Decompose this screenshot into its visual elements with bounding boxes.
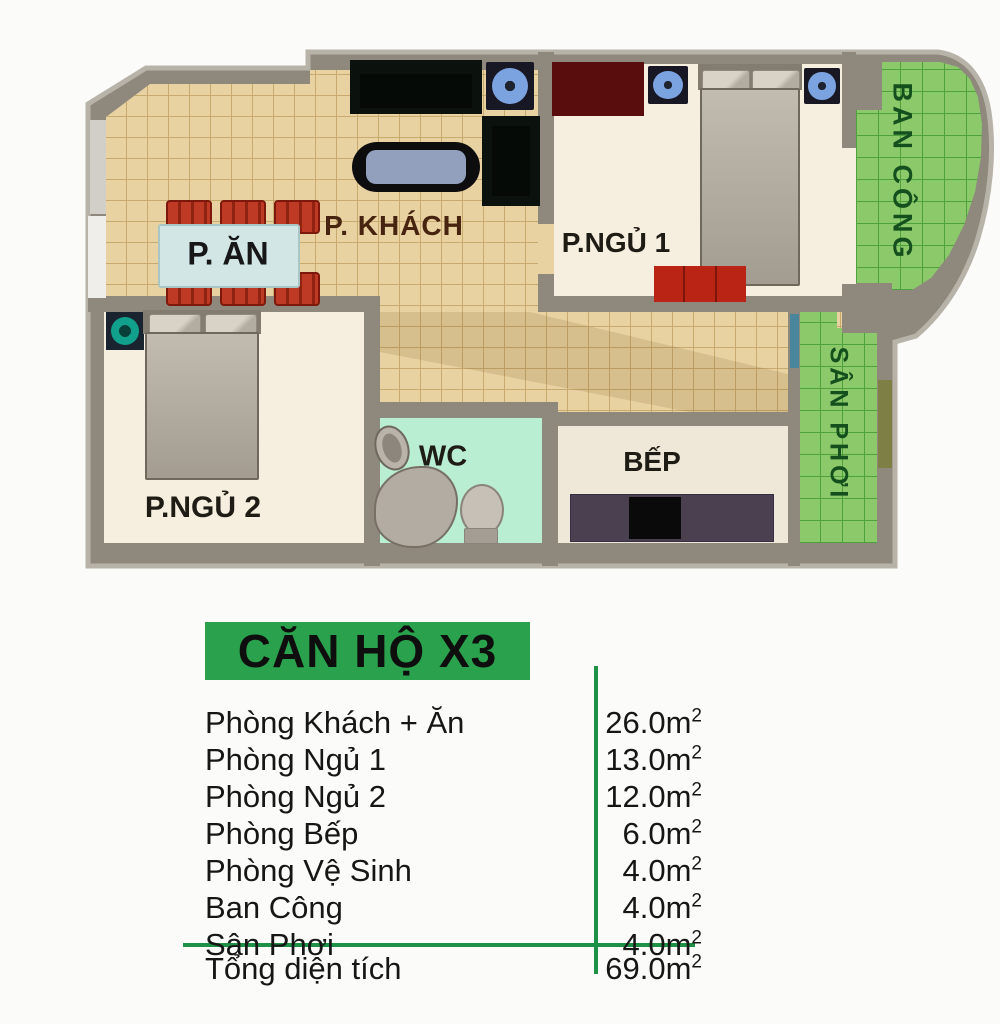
legend-row: Phòng Vệ Sinh 4.0m2 [205,852,702,889]
legend-title: CĂN HỘ X3 [238,624,497,678]
label-living: P. KHÁCH [324,210,464,242]
room-area: 26.0m2 [605,705,702,741]
sofa-main [350,60,482,114]
legend-rows: Phòng Khách + Ăn 26.0m2 Phòng Ngủ 1 13.0… [205,704,702,963]
bed-double [698,64,802,286]
coffee-table-top [366,150,466,184]
bench-seat [654,266,683,302]
total-label: Tổng diện tích [205,951,401,987]
label-kitchen: BẾP [623,446,681,478]
bench [654,266,746,302]
room-name: Phòng Ngủ 2 [205,779,386,815]
bed-duvet [145,332,259,480]
room-area: 13.0m2 [605,742,702,778]
speaker-device-icon [106,312,144,350]
label-balcony: BAN CÔNG [887,83,918,262]
wall-kitchen-top [542,412,798,426]
ac-fan-icon [808,72,835,99]
toilet-base-icon [464,528,498,544]
floor-plan-figure: P. KHÁCH P. ĂN P.NGỦ 1 P.NGỦ 2 WC BẾP BA… [0,0,1000,1024]
label-dining: P. ĂN [187,236,268,273]
legend-row: Phòng Khách + Ăn 26.0m2 [205,704,702,741]
bedroom1-door-opening [538,224,554,274]
bench-seat [685,266,714,302]
bench-seat [717,266,746,302]
room-name: Phòng Ngủ 1 [205,742,386,778]
legend-row: Ban Công 4.0m2 [205,889,702,926]
ac-unit-icon [486,62,534,110]
legend-total-row: Tổng diện tích 69.0m2 [205,950,702,987]
ac-fan-icon [492,68,529,105]
label-laundry: SÂN PHƠI [824,347,853,502]
label-bedroom2: P.NGỦ 2 [145,491,261,525]
stove-icon [629,497,681,539]
sofa-side-seat [492,126,530,196]
laundry-window [790,314,799,368]
room-name: Phòng Vệ Sinh [205,853,412,889]
total-area: 69.0m2 [605,951,702,987]
legend-row: Phòng Ngủ 2 12.0m2 [205,778,702,815]
wall-wc-right [542,402,558,566]
room-area: 12.0m2 [605,779,702,815]
ac-fan-icon [653,71,683,100]
laundry-door [878,380,892,468]
legend-title-box: CĂN HỘ X3 [205,622,530,680]
label-wc: WC [419,441,467,474]
label-bedroom1: P.NGỦ 1 [562,227,670,259]
wall-balcony-notch [856,62,882,110]
legend-row: Phòng Bếp 6.0m2 [205,815,702,852]
room-area: 6.0m2 [622,816,702,852]
wall-wc-top [378,402,558,418]
room-area: 4.0m2 [622,853,702,889]
kitchen-counter [570,494,774,542]
left-wall-window [90,120,106,214]
ac-unit-icon [648,66,688,104]
room-area: 4.0m2 [622,890,702,926]
room-name: Ban Công [205,890,343,926]
balcony-door-opening [842,148,856,284]
legend-row: Phòng Ngủ 1 13.0m2 [205,741,702,778]
speaker-cone-icon [111,317,139,345]
coffee-table [352,142,480,192]
bed-double [143,310,261,480]
room-name: Phòng Khách + Ăn [205,705,464,741]
ac-unit-icon [804,68,840,104]
room-name: Phòng Bếp [205,816,358,852]
sofa-side [482,116,540,206]
wall-balcony-bottom-block [842,283,892,333]
sink-basin-icon [379,431,405,465]
left-wall-opening [88,216,106,298]
sofa-seat [360,74,472,108]
wardrobe [552,62,644,116]
bed-duvet [700,88,800,286]
